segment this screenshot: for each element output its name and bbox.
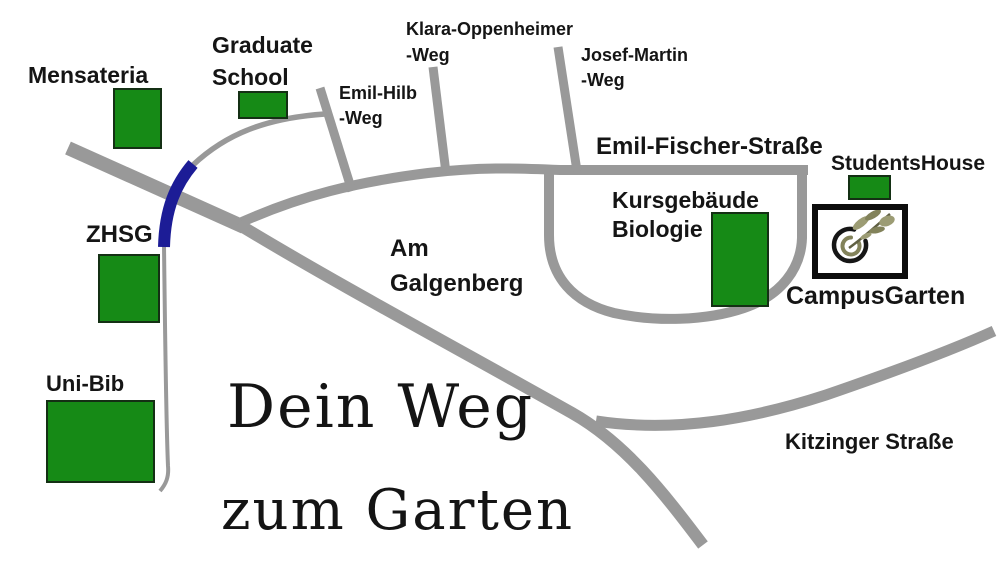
uni-bib-label: Uni-Bib [46, 370, 124, 398]
klara-label-line1: Klara-Oppenheimer [406, 16, 573, 42]
map-title-line2: zum Garten [221, 478, 574, 543]
building-graduate-school [238, 91, 288, 119]
graduate-school-label: Graduate School [212, 29, 313, 93]
campus-garten-label: CampusGarten [786, 281, 965, 312]
josef-martin-label-line1: Josef-Martin [581, 43, 688, 68]
building-mensateria [113, 88, 162, 149]
emil-hilb-label-line1: Emil-Hilb [339, 81, 417, 106]
students-house-label: StudentsHouse [831, 151, 985, 177]
am-galgenberg-label-line2: Galgenberg [390, 266, 523, 301]
klara-label-line2: -Weg [406, 42, 573, 68]
campus-garten-logo [812, 204, 908, 279]
am-galgenberg-label-line1: Am [390, 231, 523, 266]
graduate-school-label-line1: Graduate [212, 29, 313, 61]
josef-martin-weg-label: Josef-Martin -Weg [581, 43, 688, 93]
am-galgenberg-label: Am Galgenberg [390, 231, 523, 301]
kursgebaeude-label-line2: Biologie [612, 215, 759, 244]
building-zhsg [98, 254, 160, 323]
building-uni-bib [46, 400, 155, 483]
graduate-school-label-line2: School [212, 61, 313, 93]
josef-martin-label-line2: -Weg [581, 68, 688, 93]
kursgebaeude-label-line1: Kursgebäude [612, 186, 759, 215]
road-klara-oppenheimer-weg [433, 67, 446, 173]
road-footpath-graduate-curve [193, 114, 325, 165]
kitzinger-strasse-label: Kitzinger Straße [785, 428, 954, 456]
road-northwest [68, 148, 244, 227]
klara-oppenheimer-weg-label: Klara-Oppenheimer -Weg [406, 16, 573, 68]
road-kitzinger-strasse [596, 331, 994, 425]
emil-hilb-label-line2: -Weg [339, 106, 417, 131]
emil-hilb-weg-label: Emil-Hilb -Weg [339, 81, 417, 131]
mensateria-label: Mensateria [28, 61, 148, 90]
emil-fischer-strasse-label: Emil-Fischer-Straße [596, 132, 823, 162]
map-title-line1: Dein Weg [227, 372, 534, 442]
zhsg-label: ZHSG [86, 220, 153, 250]
campus-map: Mensateria Graduate School ZHSG Uni-Bib … [0, 0, 1000, 583]
kursgebaeude-biologie-label: Kursgebäude Biologie [612, 186, 759, 244]
road-path-to-uni-bib [160, 245, 168, 491]
building-students-house [848, 175, 891, 200]
leaf-circle-logo-icon [818, 210, 902, 273]
